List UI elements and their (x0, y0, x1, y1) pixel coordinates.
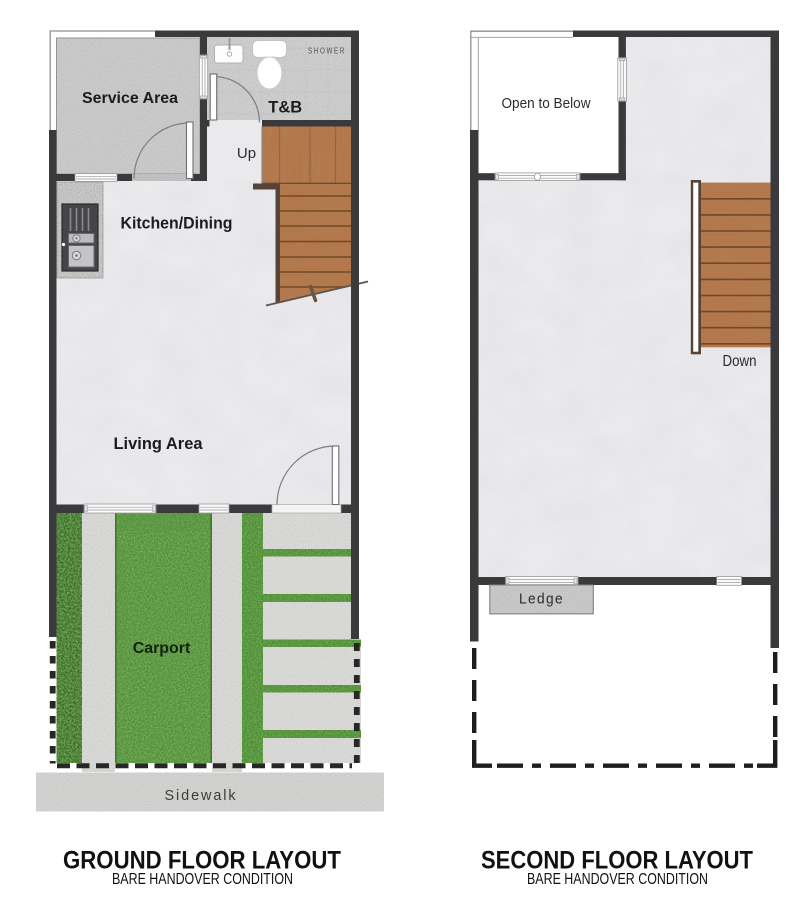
svg-text:Open to Below: Open to Below (502, 95, 591, 112)
svg-text:T&B: T&B (268, 99, 302, 117)
svg-text:Down: Down (723, 353, 757, 370)
svg-text:Carport: Carport (133, 640, 191, 657)
svg-text:Living Area: Living Area (114, 435, 204, 453)
svg-text:Kitchen/Dining: Kitchen/Dining (121, 215, 233, 233)
svg-text:BARE HANDOVER CONDITION: BARE HANDOVER CONDITION (527, 871, 708, 888)
svg-text:Up: Up (237, 145, 256, 162)
svg-text:Sidewalk: Sidewalk (165, 787, 238, 804)
svg-text:Ledge: Ledge (519, 591, 564, 608)
svg-text:BARE HANDOVER CONDITION: BARE HANDOVER CONDITION (112, 871, 293, 888)
svg-text:Service Area: Service Area (82, 90, 178, 107)
svg-text:SHOWER: SHOWER (308, 47, 346, 56)
